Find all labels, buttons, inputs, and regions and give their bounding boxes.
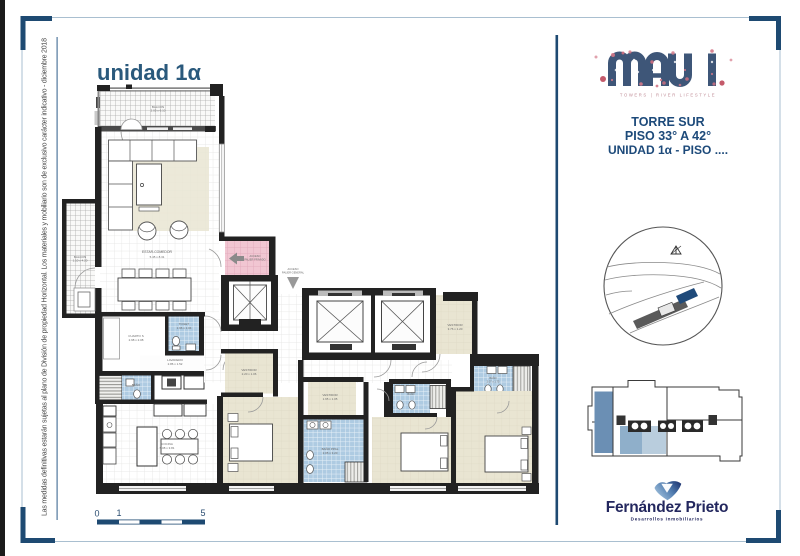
- svg-text:TORRE SUR: TORRE SUR: [631, 115, 704, 129]
- svg-text:UNIDAD 1α - PISO ....: UNIDAD 1α - PISO ....: [608, 143, 728, 157]
- svg-text:PISO 33° A 42°: PISO 33° A 42°: [625, 129, 711, 143]
- svg-text:ESTAR-COMEDOR: ESTAR-COMEDOR: [142, 250, 172, 254]
- svg-text:2.05 x 3.20: 2.05 x 3.20: [323, 451, 338, 455]
- svg-text:PALIER PRIVADO: PALIER PRIVADO: [244, 257, 265, 261]
- svg-text:Las medidas definitivas estará: Las medidas definitivas estarán sujetas …: [42, 38, 49, 516]
- svg-text:5: 5: [200, 508, 205, 518]
- svg-text:1.96 x 1.04: 1.96 x 1.04: [177, 326, 192, 330]
- svg-text:1: 1: [116, 508, 121, 518]
- svg-text:5.45 x 8.31: 5.45 x 8.31: [150, 255, 165, 259]
- svg-text:2.20 x 1.06: 2.20 x 1.06: [242, 372, 257, 376]
- svg-text:ACCESO: ACCESO: [250, 254, 261, 258]
- svg-text:BAÑO: BAÑO: [132, 382, 141, 387]
- svg-text:3.76 x 1.20: 3.76 x 1.20: [448, 327, 463, 331]
- svg-text:2.05 x 6.10: 2.05 x 6.10: [151, 109, 166, 113]
- svg-text:2.86 x 1.52: 2.86 x 1.52: [168, 362, 183, 366]
- svg-text:unidad 1α: unidad 1α: [97, 60, 201, 85]
- svg-text:0: 0: [94, 509, 99, 519]
- svg-text:1.65 x 1.05: 1.65 x 1.05: [323, 397, 338, 401]
- svg-text:Desarrollos Inmobiliarios: Desarrollos Inmobiliarios: [631, 517, 704, 522]
- svg-text:PALIER GENERAL: PALIER GENERAL: [282, 270, 305, 274]
- svg-text:1.10 x 4.20: 1.10 x 4.20: [73, 259, 88, 263]
- svg-text:5.08 x 3.81: 5.08 x 3.81: [160, 446, 175, 450]
- svg-text:Fernández Prieto: Fernández Prieto: [606, 499, 729, 516]
- svg-text:TOWERS | RIVER LIFESTYLE: TOWERS | RIVER LIFESTYLE: [620, 93, 716, 98]
- svg-text:ACCESO: ACCESO: [288, 267, 299, 271]
- svg-text:2.98 x 2.08: 2.98 x 2.08: [129, 338, 144, 342]
- svg-text:2.07 x 1.75: 2.07 x 1.75: [487, 379, 500, 383]
